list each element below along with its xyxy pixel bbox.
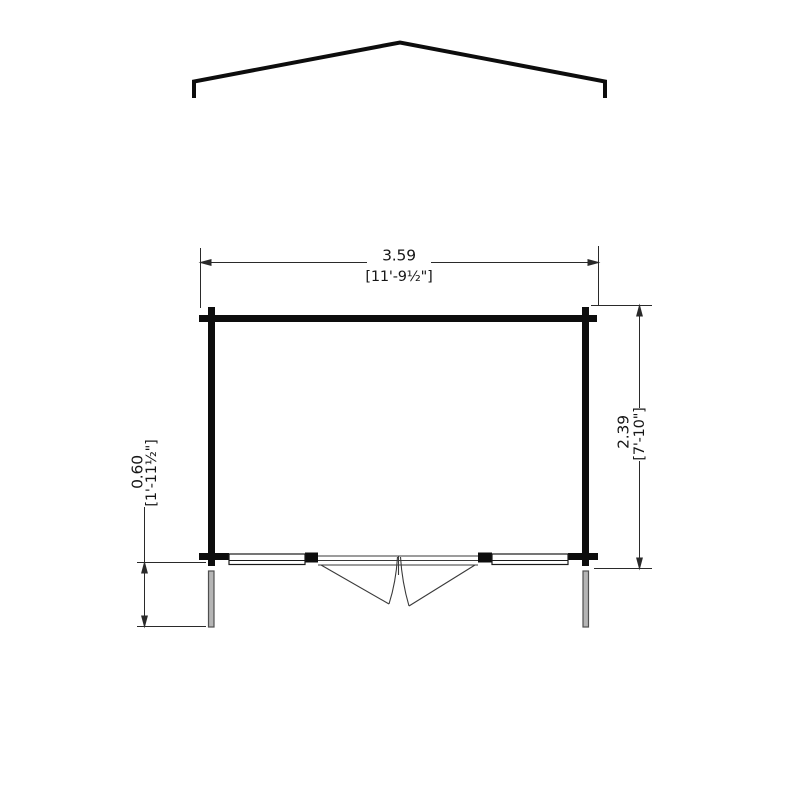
arrowhead-left — [201, 260, 212, 266]
depth-dimension-metric: 2.39 — [616, 415, 632, 449]
post-right — [583, 571, 589, 627]
window-left — [229, 554, 305, 565]
wall-bottom-right-segment — [568, 553, 598, 560]
roof-outline — [194, 43, 605, 97]
arrowhead-right — [588, 260, 599, 266]
double-door — [318, 556, 478, 606]
door-leaf-left — [321, 557, 398, 604]
arrowhead-top — [142, 563, 148, 574]
roof-ridge-line — [194, 43, 605, 97]
dimension-overhang — [137, 507, 206, 627]
building-walls — [199, 307, 598, 566]
depth-dimension-imperial: [7'-10"] — [633, 407, 648, 460]
window-right — [492, 554, 568, 565]
arrowhead-top — [637, 306, 643, 317]
post-left — [209, 571, 215, 627]
canopy-posts — [209, 571, 589, 627]
width-dimension-imperial: [11'-9½"] — [365, 270, 432, 285]
arrowhead-bottom — [142, 616, 148, 627]
wall-top — [199, 315, 597, 322]
wall-mullion-left — [305, 553, 318, 563]
width-dimension-metric: 3.59 — [382, 248, 416, 264]
wall-left — [208, 307, 215, 566]
wall-mullion-right — [478, 553, 492, 563]
wall-right — [582, 307, 589, 566]
wall-bottom-left-segment — [199, 553, 229, 560]
door-leaf-right — [401, 557, 476, 606]
arrowhead-bottom — [637, 558, 643, 569]
overhang-dimension-imperial: [1'-11½"] — [145, 439, 160, 506]
floor-plan-canvas: 3.59 [11'-9½"] 2.39 [7'-10"] 0.60 [1'-11… — [0, 0, 800, 800]
floor-plan-drawing — [0, 0, 800, 800]
